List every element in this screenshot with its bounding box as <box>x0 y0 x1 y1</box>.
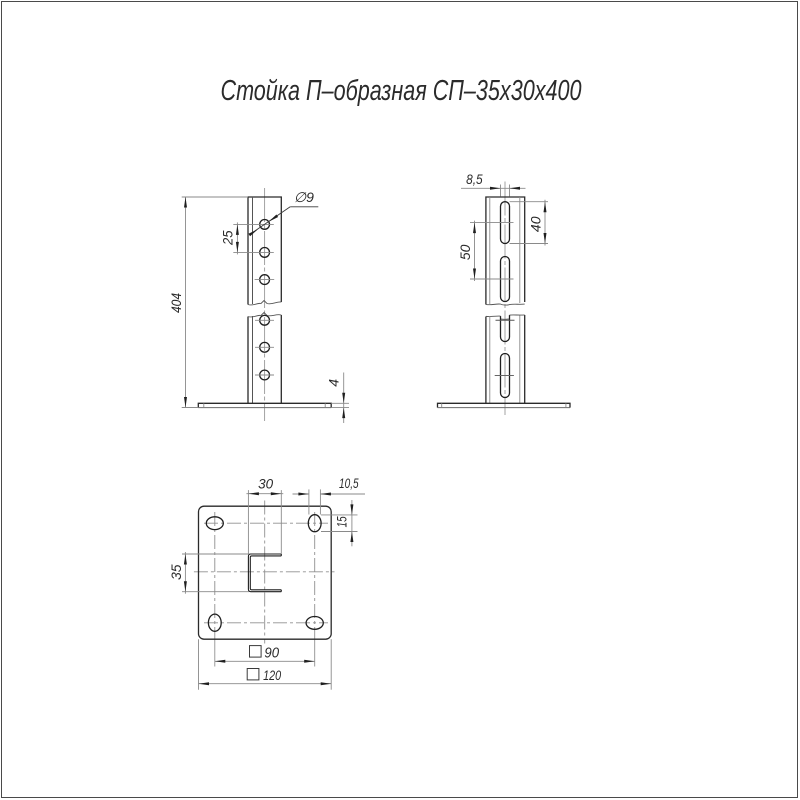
svg-text:4: 4 <box>326 379 342 387</box>
svg-text:15: 15 <box>333 516 349 527</box>
svg-text:∅9: ∅9 <box>294 189 314 205</box>
svg-text:35: 35 <box>168 564 184 580</box>
svg-text:10,5: 10,5 <box>339 476 359 491</box>
svg-text:50: 50 <box>457 244 473 260</box>
svg-text:120: 120 <box>263 667 281 683</box>
svg-text:8,5: 8,5 <box>466 172 483 187</box>
svg-text:25: 25 <box>220 230 236 246</box>
svg-text:30: 30 <box>258 476 273 492</box>
svg-text:404: 404 <box>168 293 184 313</box>
svg-text:40: 40 <box>528 216 544 232</box>
svg-text:Стойка П–образная СП–35х30х400: Стойка П–образная СП–35х30х400 <box>221 75 582 107</box>
svg-text:90: 90 <box>264 645 279 661</box>
